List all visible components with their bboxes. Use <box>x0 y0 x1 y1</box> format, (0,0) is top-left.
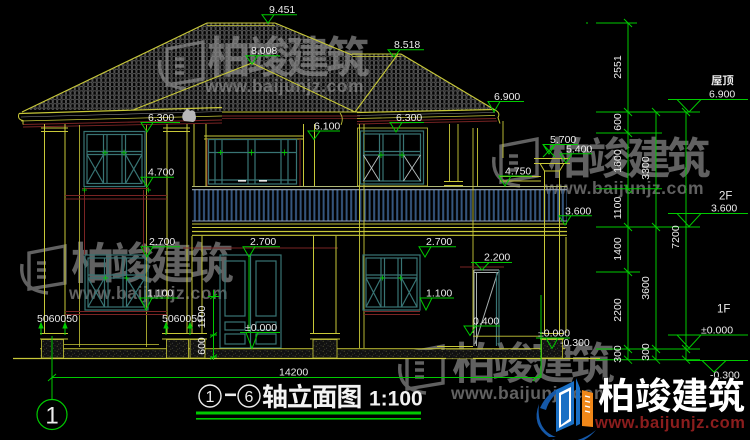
svg-text:8.518: 8.518 <box>394 39 420 51</box>
svg-text:1.100: 1.100 <box>147 288 173 300</box>
svg-text:1100: 1100 <box>196 306 208 329</box>
svg-text:0.400: 0.400 <box>473 316 499 328</box>
svg-text:2.200: 2.200 <box>484 252 510 264</box>
svg-text:2.700: 2.700 <box>149 236 175 248</box>
svg-text:±0.000: ±0.000 <box>245 322 277 334</box>
svg-text:5060050: 5060050 <box>37 313 78 325</box>
svg-text:www.baijunjz.com: www.baijunjz.com <box>544 178 704 198</box>
svg-text:1:100: 1:100 <box>369 388 423 411</box>
svg-text:4.700: 4.700 <box>148 167 174 179</box>
svg-text:±0.000: ±0.000 <box>701 325 733 337</box>
svg-text:3.600: 3.600 <box>711 203 737 215</box>
svg-text:www.baijunjz.com: www.baijunjz.com <box>204 76 364 96</box>
svg-text:3600: 3600 <box>640 276 652 300</box>
svg-text:2551: 2551 <box>612 55 624 79</box>
svg-text:6.900: 6.900 <box>709 89 735 101</box>
svg-text:2F: 2F <box>719 191 732 203</box>
svg-text:1: 1 <box>45 403 58 430</box>
svg-text:2200: 2200 <box>612 298 624 322</box>
svg-text:3.600: 3.600 <box>565 205 591 217</box>
svg-text:7200: 7200 <box>670 225 682 249</box>
svg-text:1: 1 <box>206 389 215 406</box>
svg-text:300: 300 <box>640 343 652 361</box>
svg-text:1F: 1F <box>717 304 730 316</box>
svg-text:600: 600 <box>612 113 624 131</box>
svg-text:2.700: 2.700 <box>426 236 452 248</box>
svg-text:600: 600 <box>196 337 208 355</box>
svg-text:4.750: 4.750 <box>505 166 531 178</box>
svg-text:2.700: 2.700 <box>250 236 276 248</box>
svg-text:www.baijunjz.com: www.baijunjz.com <box>594 414 745 432</box>
svg-text:6.100: 6.100 <box>314 121 340 133</box>
svg-text:-0.300: -0.300 <box>560 337 590 349</box>
svg-text:6.300: 6.300 <box>148 112 174 124</box>
svg-text:14200: 14200 <box>279 367 308 379</box>
svg-text:1100: 1100 <box>612 197 624 220</box>
svg-text:1.100: 1.100 <box>426 288 452 300</box>
svg-text:6: 6 <box>245 389 254 406</box>
svg-text:8.008: 8.008 <box>251 45 277 57</box>
svg-text:9.451: 9.451 <box>269 4 295 16</box>
svg-text:1600: 1600 <box>612 149 624 173</box>
svg-text:1400: 1400 <box>612 237 624 261</box>
svg-text:3300: 3300 <box>640 156 652 180</box>
svg-text:6.900: 6.900 <box>494 91 520 103</box>
svg-text:5.400: 5.400 <box>566 143 592 155</box>
svg-text:6.300: 6.300 <box>396 112 422 124</box>
svg-text:300: 300 <box>612 345 624 363</box>
